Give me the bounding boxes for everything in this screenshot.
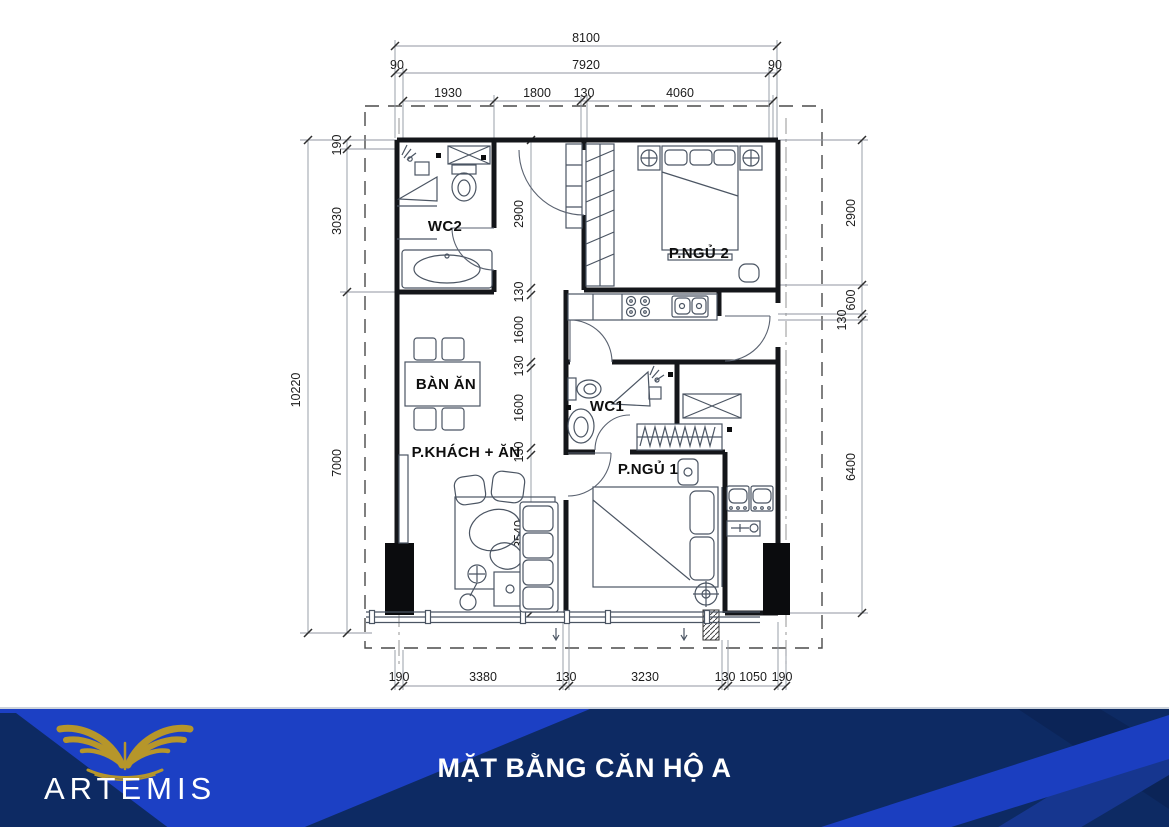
dimensions-left: 10220 190 3030 7000 — [289, 135, 397, 637]
dimensions-right: 2900 600 130 6400 — [778, 136, 868, 617]
column-right — [763, 543, 790, 615]
dim-bot-3380: 3380 — [469, 670, 497, 684]
bedroom1-furniture — [593, 459, 722, 607]
columns — [385, 543, 790, 640]
bedroom2-furniture — [566, 144, 762, 286]
page: 8100 90 7920 90 1930 1800 130 4060 10220… — [0, 0, 1169, 827]
dim-bot-190r: 190 — [772, 670, 793, 684]
label-living: P.KHÁCH + ĂN — [412, 444, 521, 461]
dim-left-3030: 3030 — [330, 207, 344, 235]
dim-bot-130a: 130 — [556, 670, 577, 684]
dim-top-1930: 1930 — [434, 86, 462, 100]
dim-mid-1600b: 1600 — [512, 394, 526, 422]
dim-top-1800: 1800 — [523, 86, 551, 100]
label-bedroom2: P.NGỦ 2 — [669, 244, 729, 262]
corridor-closets — [637, 394, 741, 450]
dim-bot-190l: 190 — [389, 670, 410, 684]
floor-plan-drawing: 8100 90 7920 90 1930 1800 130 4060 10220… — [0, 0, 1169, 707]
label-wc1: WC1 — [590, 398, 624, 415]
dimensions-top: 8100 90 7920 90 1930 1800 130 4060 — [390, 31, 782, 140]
dim-top-7920: 7920 — [572, 58, 600, 72]
dim-right-600: 600 — [844, 290, 858, 311]
dim-left-7000: 7000 — [330, 449, 344, 477]
utility-fixtures — [727, 486, 773, 536]
dim-top-total: 8100 — [572, 31, 600, 45]
dim-bot-3230: 3230 — [631, 670, 659, 684]
kitchen-fixtures — [568, 294, 717, 320]
dim-left-total: 10220 — [289, 373, 303, 408]
dim-top-90r: 90 — [768, 58, 782, 72]
living-furniture — [399, 455, 558, 612]
column-left — [385, 543, 414, 615]
label-wc2: WC2 — [428, 218, 462, 235]
dim-mid-130b: 130 — [512, 356, 526, 377]
dim-mid-1600a: 1600 — [512, 316, 526, 344]
label-bedroom1: P.NGỦ 1 — [618, 460, 678, 478]
dim-right-2900: 2900 — [844, 199, 858, 227]
dim-top-4060: 4060 — [666, 86, 694, 100]
dim-top-130: 130 — [574, 86, 595, 100]
dim-left-190: 190 — [330, 135, 344, 156]
dim-bot-1050: 1050 — [739, 670, 767, 684]
dim-top-90l: 90 — [390, 58, 404, 72]
dim-right-6400: 6400 — [844, 453, 858, 481]
label-dining: BÀN ĂN — [416, 376, 476, 393]
dim-bot-130b: 130 — [715, 670, 736, 684]
banner: ARTEMIS MẶT BẰNG CĂN HỘ A — [0, 707, 1169, 827]
dim-right-130: 130 — [835, 310, 849, 331]
page-title: MẶT BẰNG CĂN HỘ A — [0, 753, 1169, 784]
dim-mid-2900: 2900 — [512, 200, 526, 228]
dimensions-bottom: 190 3380 130 3230 130 1050 190 — [389, 622, 793, 690]
dim-mid-130a: 130 — [512, 282, 526, 303]
